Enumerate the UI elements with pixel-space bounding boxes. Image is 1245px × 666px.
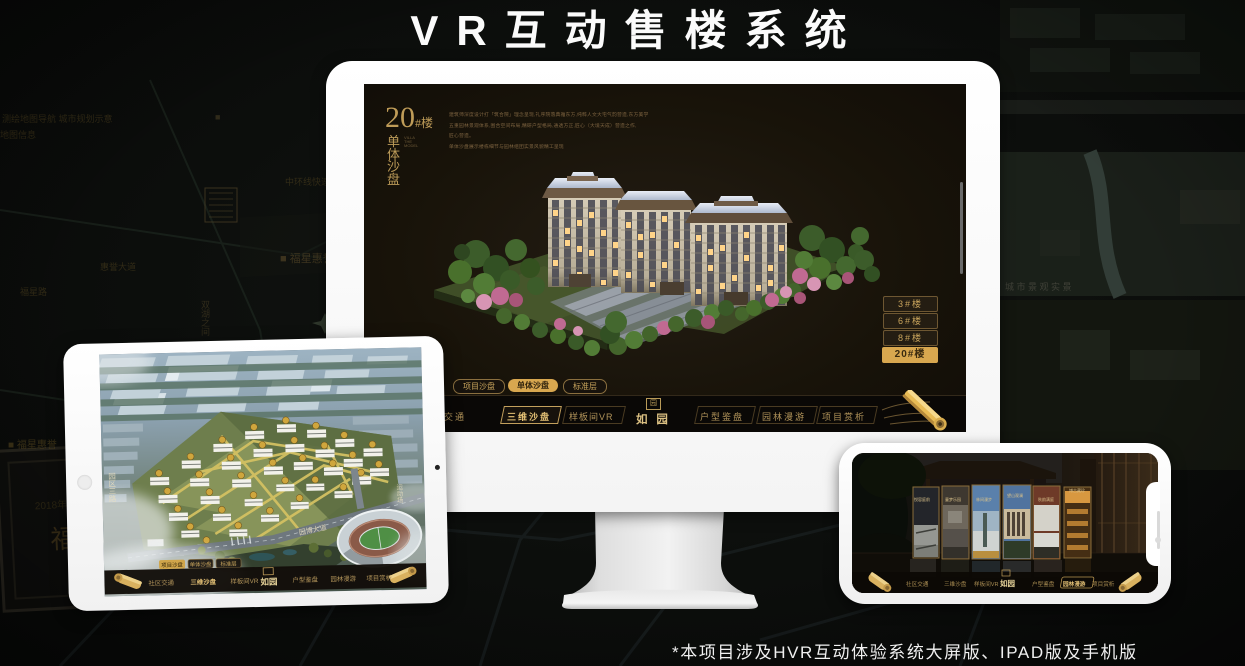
- svg-text:望山观澜: 望山观澜: [1007, 492, 1023, 498]
- svg-text:童梦乐园: 童梦乐园: [945, 496, 961, 502]
- svg-text:户型鉴盘: 户型鉴盘: [1032, 580, 1055, 588]
- svg-text:博古藏珍: 博古藏珍: [1069, 487, 1085, 493]
- svg-text:园区三路: 园区三路: [107, 472, 117, 503]
- svg-text:如园: 如园: [260, 577, 277, 587]
- svg-text:林间漫步: 林间漫步: [976, 496, 992, 502]
- svg-text:如园: 如园: [1000, 578, 1015, 588]
- svg-text:秋韵满庭: 秋韵满庭: [1038, 496, 1054, 502]
- svg-text:项目赏析: 项目赏析: [1092, 580, 1115, 588]
- svg-text:样板间VR: 样板间VR: [974, 580, 999, 588]
- svg-text:社区交通: 社区交通: [906, 580, 929, 588]
- svg-text:园林漫游: 园林漫游: [1063, 580, 1086, 588]
- svg-text:悦容庭前: 悦容庭前: [914, 496, 930, 502]
- svg-text:三维沙盘: 三维沙盘: [944, 580, 967, 588]
